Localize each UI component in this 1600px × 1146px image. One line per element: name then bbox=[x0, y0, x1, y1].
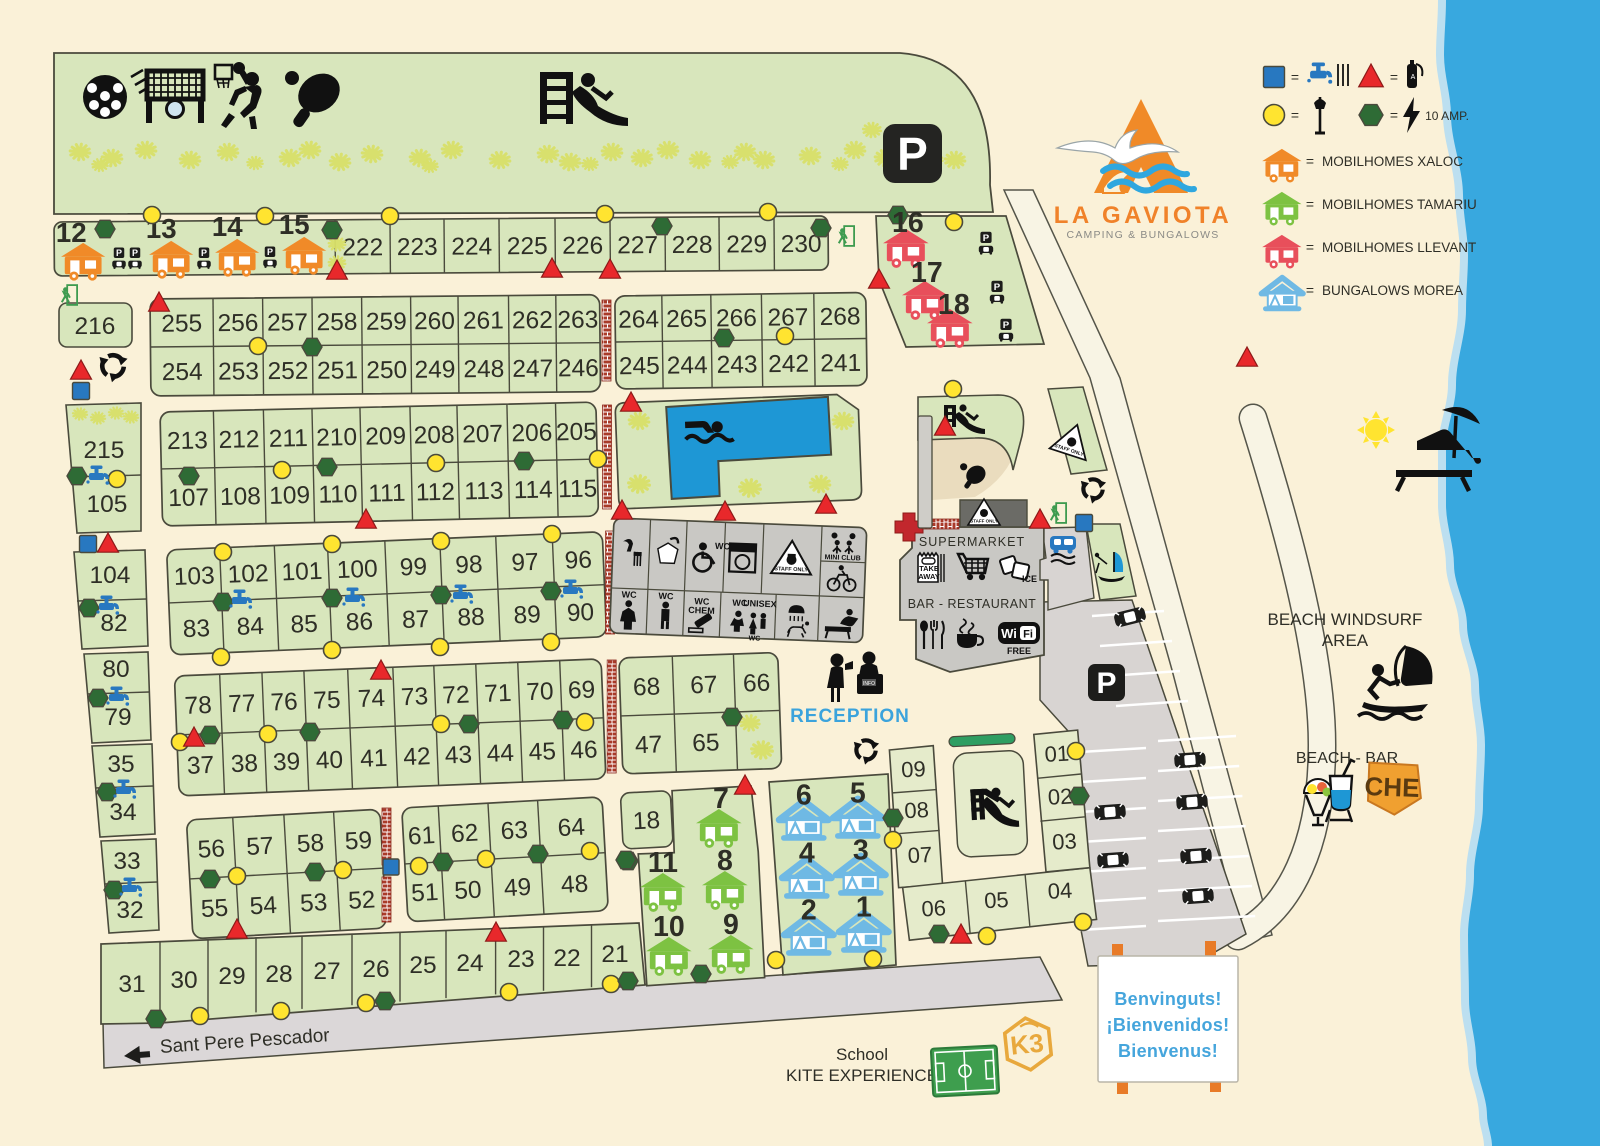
svg-text:68: 68 bbox=[633, 673, 661, 701]
svg-text:=: = bbox=[1291, 107, 1299, 123]
svg-text:52: 52 bbox=[347, 886, 376, 914]
svg-text:252: 252 bbox=[267, 358, 308, 385]
svg-text:04: 04 bbox=[1047, 878, 1073, 904]
svg-text:222: 222 bbox=[342, 234, 383, 261]
svg-text:47: 47 bbox=[635, 731, 663, 759]
svg-text:229: 229 bbox=[726, 231, 767, 258]
svg-text:49: 49 bbox=[503, 874, 532, 902]
svg-text:76: 76 bbox=[270, 688, 298, 716]
svg-text:4: 4 bbox=[799, 838, 815, 870]
svg-text:48: 48 bbox=[560, 871, 589, 899]
svg-text:88: 88 bbox=[457, 604, 485, 632]
svg-text:=: = bbox=[1306, 196, 1314, 212]
svg-text:59: 59 bbox=[344, 827, 373, 855]
svg-text:82: 82 bbox=[100, 610, 127, 637]
svg-text:225: 225 bbox=[507, 233, 548, 260]
svg-text:215: 215 bbox=[84, 437, 125, 464]
svg-text:244: 244 bbox=[667, 352, 708, 380]
svg-text:07: 07 bbox=[907, 842, 933, 868]
svg-text:37: 37 bbox=[186, 752, 214, 780]
svg-text:258: 258 bbox=[316, 309, 357, 336]
svg-text:75: 75 bbox=[313, 687, 341, 715]
svg-text:School: School bbox=[836, 1045, 888, 1064]
svg-text:205: 205 bbox=[556, 418, 597, 446]
svg-text:5: 5 bbox=[850, 778, 866, 810]
svg-text:71: 71 bbox=[484, 680, 512, 708]
svg-text:80: 80 bbox=[102, 656, 129, 683]
svg-text:257: 257 bbox=[267, 309, 308, 336]
svg-text:LA GAVIOTA: LA GAVIOTA bbox=[1054, 202, 1233, 229]
svg-text:8: 8 bbox=[717, 845, 733, 877]
svg-text:45: 45 bbox=[528, 738, 556, 766]
svg-text:18: 18 bbox=[938, 289, 970, 321]
svg-text:65: 65 bbox=[692, 729, 720, 757]
svg-text:WC: WC bbox=[748, 635, 760, 642]
svg-text:01: 01 bbox=[1044, 741, 1070, 767]
svg-text:254: 254 bbox=[162, 359, 203, 386]
svg-text:105: 105 bbox=[87, 491, 128, 518]
svg-text:228: 228 bbox=[672, 232, 713, 259]
svg-text:58: 58 bbox=[296, 830, 325, 858]
svg-text:89: 89 bbox=[513, 601, 541, 629]
svg-text:16: 16 bbox=[892, 207, 924, 239]
svg-text:110: 110 bbox=[318, 481, 358, 509]
svg-text:10 AMP.: 10 AMP. bbox=[1425, 109, 1469, 123]
svg-text:223: 223 bbox=[397, 234, 438, 261]
svg-text:24: 24 bbox=[456, 950, 483, 977]
svg-text:43: 43 bbox=[444, 741, 472, 769]
svg-text:98: 98 bbox=[455, 551, 483, 579]
svg-text:84: 84 bbox=[236, 613, 264, 641]
svg-text:A: A bbox=[1411, 74, 1416, 81]
svg-text:UNISEX: UNISEX bbox=[743, 598, 777, 609]
svg-text:MOBILHOMES TAMARIU: MOBILHOMES TAMARIU bbox=[1322, 197, 1477, 212]
svg-text:CHEM: CHEM bbox=[688, 605, 715, 616]
svg-text:SUPERMARKET: SUPERMARKET bbox=[919, 535, 1025, 549]
svg-text:31: 31 bbox=[118, 971, 145, 998]
svg-text:66: 66 bbox=[742, 670, 770, 698]
svg-text:P: P bbox=[897, 128, 928, 180]
svg-text:44: 44 bbox=[486, 740, 514, 768]
svg-text:33: 33 bbox=[113, 848, 140, 875]
svg-text:242: 242 bbox=[768, 351, 809, 379]
svg-text:53: 53 bbox=[299, 889, 328, 917]
svg-text:78: 78 bbox=[184, 692, 212, 720]
svg-text:21: 21 bbox=[601, 941, 628, 968]
svg-text:P: P bbox=[267, 247, 273, 257]
svg-text:BEACH WINDSURF: BEACH WINDSURF bbox=[1268, 610, 1423, 629]
svg-text:73: 73 bbox=[400, 683, 428, 711]
svg-text:2: 2 bbox=[801, 895, 817, 927]
svg-text:74: 74 bbox=[357, 685, 385, 713]
svg-text:=: = bbox=[1306, 239, 1314, 255]
svg-text:26: 26 bbox=[362, 956, 389, 983]
svg-text:AWAY: AWAY bbox=[918, 572, 939, 581]
svg-text:243: 243 bbox=[716, 351, 757, 379]
svg-text:=: = bbox=[1390, 107, 1398, 123]
svg-text:72: 72 bbox=[442, 681, 470, 709]
svg-text:34: 34 bbox=[109, 799, 136, 826]
svg-text:32: 32 bbox=[116, 897, 143, 924]
svg-text:28: 28 bbox=[265, 961, 292, 988]
svg-text:CAMPING & BUNGALOWS: CAMPING & BUNGALOWS bbox=[1067, 229, 1220, 241]
svg-text:209: 209 bbox=[365, 423, 406, 451]
svg-text:CHE: CHE bbox=[1364, 771, 1420, 803]
svg-text:¡Bienvenidos!: ¡Bienvenidos! bbox=[1107, 1015, 1230, 1035]
svg-text:P: P bbox=[994, 282, 1001, 293]
svg-text:79: 79 bbox=[104, 704, 131, 731]
svg-text:251: 251 bbox=[317, 357, 358, 384]
svg-text:14: 14 bbox=[212, 211, 243, 242]
svg-text:P: P bbox=[116, 248, 122, 258]
svg-text:08: 08 bbox=[904, 797, 930, 823]
svg-text:Fi: Fi bbox=[1023, 629, 1033, 641]
svg-text:77: 77 bbox=[228, 690, 256, 718]
svg-text:42: 42 bbox=[403, 743, 431, 771]
svg-text:259: 259 bbox=[366, 308, 407, 335]
svg-text:9: 9 bbox=[723, 909, 739, 941]
svg-text:12: 12 bbox=[56, 217, 87, 248]
svg-text:114: 114 bbox=[513, 476, 553, 504]
svg-text:P: P bbox=[983, 233, 990, 244]
svg-text:64: 64 bbox=[557, 814, 586, 842]
svg-text:RECEPTION: RECEPTION bbox=[790, 706, 910, 727]
svg-text:ICE: ICE bbox=[1022, 574, 1037, 584]
svg-text:100: 100 bbox=[336, 555, 378, 584]
svg-text:70: 70 bbox=[526, 678, 554, 706]
svg-text:263: 263 bbox=[557, 306, 598, 333]
svg-text:226: 226 bbox=[562, 232, 603, 259]
svg-text:57: 57 bbox=[246, 832, 275, 860]
svg-text:62: 62 bbox=[450, 820, 479, 848]
svg-text:213: 213 bbox=[167, 427, 208, 455]
svg-text:39: 39 bbox=[272, 748, 300, 776]
svg-text:29: 29 bbox=[218, 963, 245, 990]
svg-text:35: 35 bbox=[107, 751, 134, 778]
svg-text:87: 87 bbox=[401, 606, 429, 634]
svg-text:262: 262 bbox=[512, 307, 553, 334]
svg-text:17: 17 bbox=[911, 257, 943, 289]
svg-text:25: 25 bbox=[409, 952, 436, 979]
svg-text:WC: WC bbox=[715, 541, 731, 552]
svg-text:23: 23 bbox=[507, 946, 534, 973]
svg-text:241: 241 bbox=[820, 350, 861, 378]
svg-text:63: 63 bbox=[500, 817, 529, 845]
svg-text:206: 206 bbox=[511, 419, 552, 447]
svg-text:30: 30 bbox=[170, 967, 197, 994]
svg-text:MOBILHOMES XALOC: MOBILHOMES XALOC bbox=[1322, 154, 1463, 169]
svg-text:248: 248 bbox=[463, 356, 504, 383]
svg-text:255: 255 bbox=[161, 310, 202, 337]
svg-text:266: 266 bbox=[716, 305, 757, 333]
svg-text:96: 96 bbox=[564, 547, 592, 575]
svg-text:BUNGALOWS MOREA: BUNGALOWS MOREA bbox=[1322, 283, 1463, 298]
svg-text:212: 212 bbox=[218, 426, 259, 454]
svg-text:STAFF ONLY: STAFF ONLY bbox=[970, 519, 998, 524]
svg-text:113: 113 bbox=[464, 478, 504, 506]
svg-text:=: = bbox=[1306, 153, 1314, 169]
svg-text:90: 90 bbox=[566, 599, 594, 627]
svg-text:=: = bbox=[1306, 282, 1314, 298]
svg-text:3: 3 bbox=[853, 835, 869, 867]
svg-text:10: 10 bbox=[653, 911, 685, 943]
svg-text:224: 224 bbox=[451, 233, 492, 260]
svg-text:104: 104 bbox=[90, 562, 131, 589]
svg-text:09: 09 bbox=[901, 756, 927, 782]
svg-text:46: 46 bbox=[570, 736, 598, 764]
svg-text:1: 1 bbox=[856, 892, 872, 924]
svg-text:54: 54 bbox=[249, 892, 278, 920]
svg-text:KITE EXPERIENCE: KITE EXPERIENCE bbox=[786, 1066, 938, 1085]
svg-text:216: 216 bbox=[75, 313, 116, 340]
svg-text:208: 208 bbox=[413, 422, 454, 450]
svg-text:99: 99 bbox=[399, 553, 427, 581]
svg-text:245: 245 bbox=[619, 353, 660, 381]
svg-text:7: 7 bbox=[713, 783, 729, 815]
svg-text:06: 06 bbox=[921, 895, 947, 921]
svg-text:03: 03 bbox=[1052, 828, 1078, 854]
svg-text:WC: WC bbox=[621, 589, 637, 600]
svg-text:107: 107 bbox=[168, 484, 209, 512]
svg-text:P: P bbox=[132, 248, 138, 258]
svg-text:AREA: AREA bbox=[1322, 631, 1369, 650]
svg-text:56: 56 bbox=[197, 835, 226, 863]
svg-text:P: P bbox=[201, 248, 207, 258]
svg-text:115: 115 bbox=[558, 475, 598, 503]
svg-text:40: 40 bbox=[315, 747, 343, 775]
svg-text:38: 38 bbox=[230, 750, 258, 778]
svg-text:WC: WC bbox=[658, 591, 674, 602]
svg-text:61: 61 bbox=[407, 822, 436, 850]
svg-text:51: 51 bbox=[410, 879, 439, 907]
svg-text:=: = bbox=[1291, 69, 1299, 85]
svg-text:268: 268 bbox=[819, 303, 860, 331]
svg-text:86: 86 bbox=[345, 608, 373, 636]
svg-text:K3: K3 bbox=[1009, 1027, 1045, 1060]
svg-text:108: 108 bbox=[220, 483, 261, 511]
svg-text:=: = bbox=[1390, 69, 1398, 85]
svg-text:41: 41 bbox=[360, 745, 388, 773]
svg-text:INFO: INFO bbox=[863, 681, 875, 687]
svg-text:MINI CLUB: MINI CLUB bbox=[824, 554, 860, 562]
svg-text:69: 69 bbox=[567, 676, 595, 704]
svg-text:55: 55 bbox=[200, 895, 229, 923]
svg-text:103: 103 bbox=[173, 562, 215, 591]
svg-text:260: 260 bbox=[414, 308, 455, 335]
svg-text:83: 83 bbox=[182, 615, 210, 643]
svg-text:102: 102 bbox=[227, 560, 269, 589]
svg-text:85: 85 bbox=[290, 611, 318, 639]
svg-text:97: 97 bbox=[511, 549, 539, 577]
svg-text:11: 11 bbox=[648, 847, 678, 879]
svg-text:Wi: Wi bbox=[1001, 626, 1017, 641]
svg-text:BAR - RESTAURANT: BAR - RESTAURANT bbox=[908, 597, 1037, 611]
svg-text:227: 227 bbox=[617, 232, 658, 259]
svg-text:261: 261 bbox=[463, 307, 504, 334]
svg-text:247: 247 bbox=[512, 355, 553, 382]
svg-text:101: 101 bbox=[281, 558, 323, 587]
svg-text:210: 210 bbox=[316, 424, 357, 452]
svg-text:112: 112 bbox=[416, 479, 456, 507]
svg-text:6: 6 bbox=[796, 780, 812, 812]
svg-text:264: 264 bbox=[618, 306, 659, 334]
svg-text:246: 246 bbox=[558, 355, 599, 382]
svg-text:50: 50 bbox=[454, 876, 483, 904]
svg-text:18: 18 bbox=[632, 807, 661, 835]
svg-text:256: 256 bbox=[217, 310, 258, 337]
svg-text:MOBILHOMES LLEVANT: MOBILHOMES LLEVANT bbox=[1322, 240, 1476, 255]
svg-text:FREE: FREE bbox=[1007, 646, 1031, 656]
svg-text:P: P bbox=[1003, 320, 1010, 331]
svg-text:05: 05 bbox=[984, 887, 1010, 913]
svg-text:211: 211 bbox=[269, 425, 309, 453]
svg-text:250: 250 bbox=[366, 357, 407, 384]
svg-text:111: 111 bbox=[368, 480, 406, 508]
svg-text:Bienvenus!: Bienvenus! bbox=[1118, 1041, 1218, 1061]
svg-text:253: 253 bbox=[218, 358, 259, 385]
svg-text:22: 22 bbox=[553, 945, 580, 972]
svg-text:249: 249 bbox=[414, 356, 455, 383]
svg-text:109: 109 bbox=[269, 482, 310, 510]
svg-text:27: 27 bbox=[313, 958, 340, 985]
svg-text:P: P bbox=[1096, 667, 1116, 700]
svg-text:Benvinguts!: Benvinguts! bbox=[1114, 989, 1221, 1009]
svg-text:15: 15 bbox=[279, 209, 310, 240]
svg-text:207: 207 bbox=[462, 421, 503, 449]
svg-text:67: 67 bbox=[690, 671, 718, 699]
svg-text:265: 265 bbox=[666, 306, 707, 334]
